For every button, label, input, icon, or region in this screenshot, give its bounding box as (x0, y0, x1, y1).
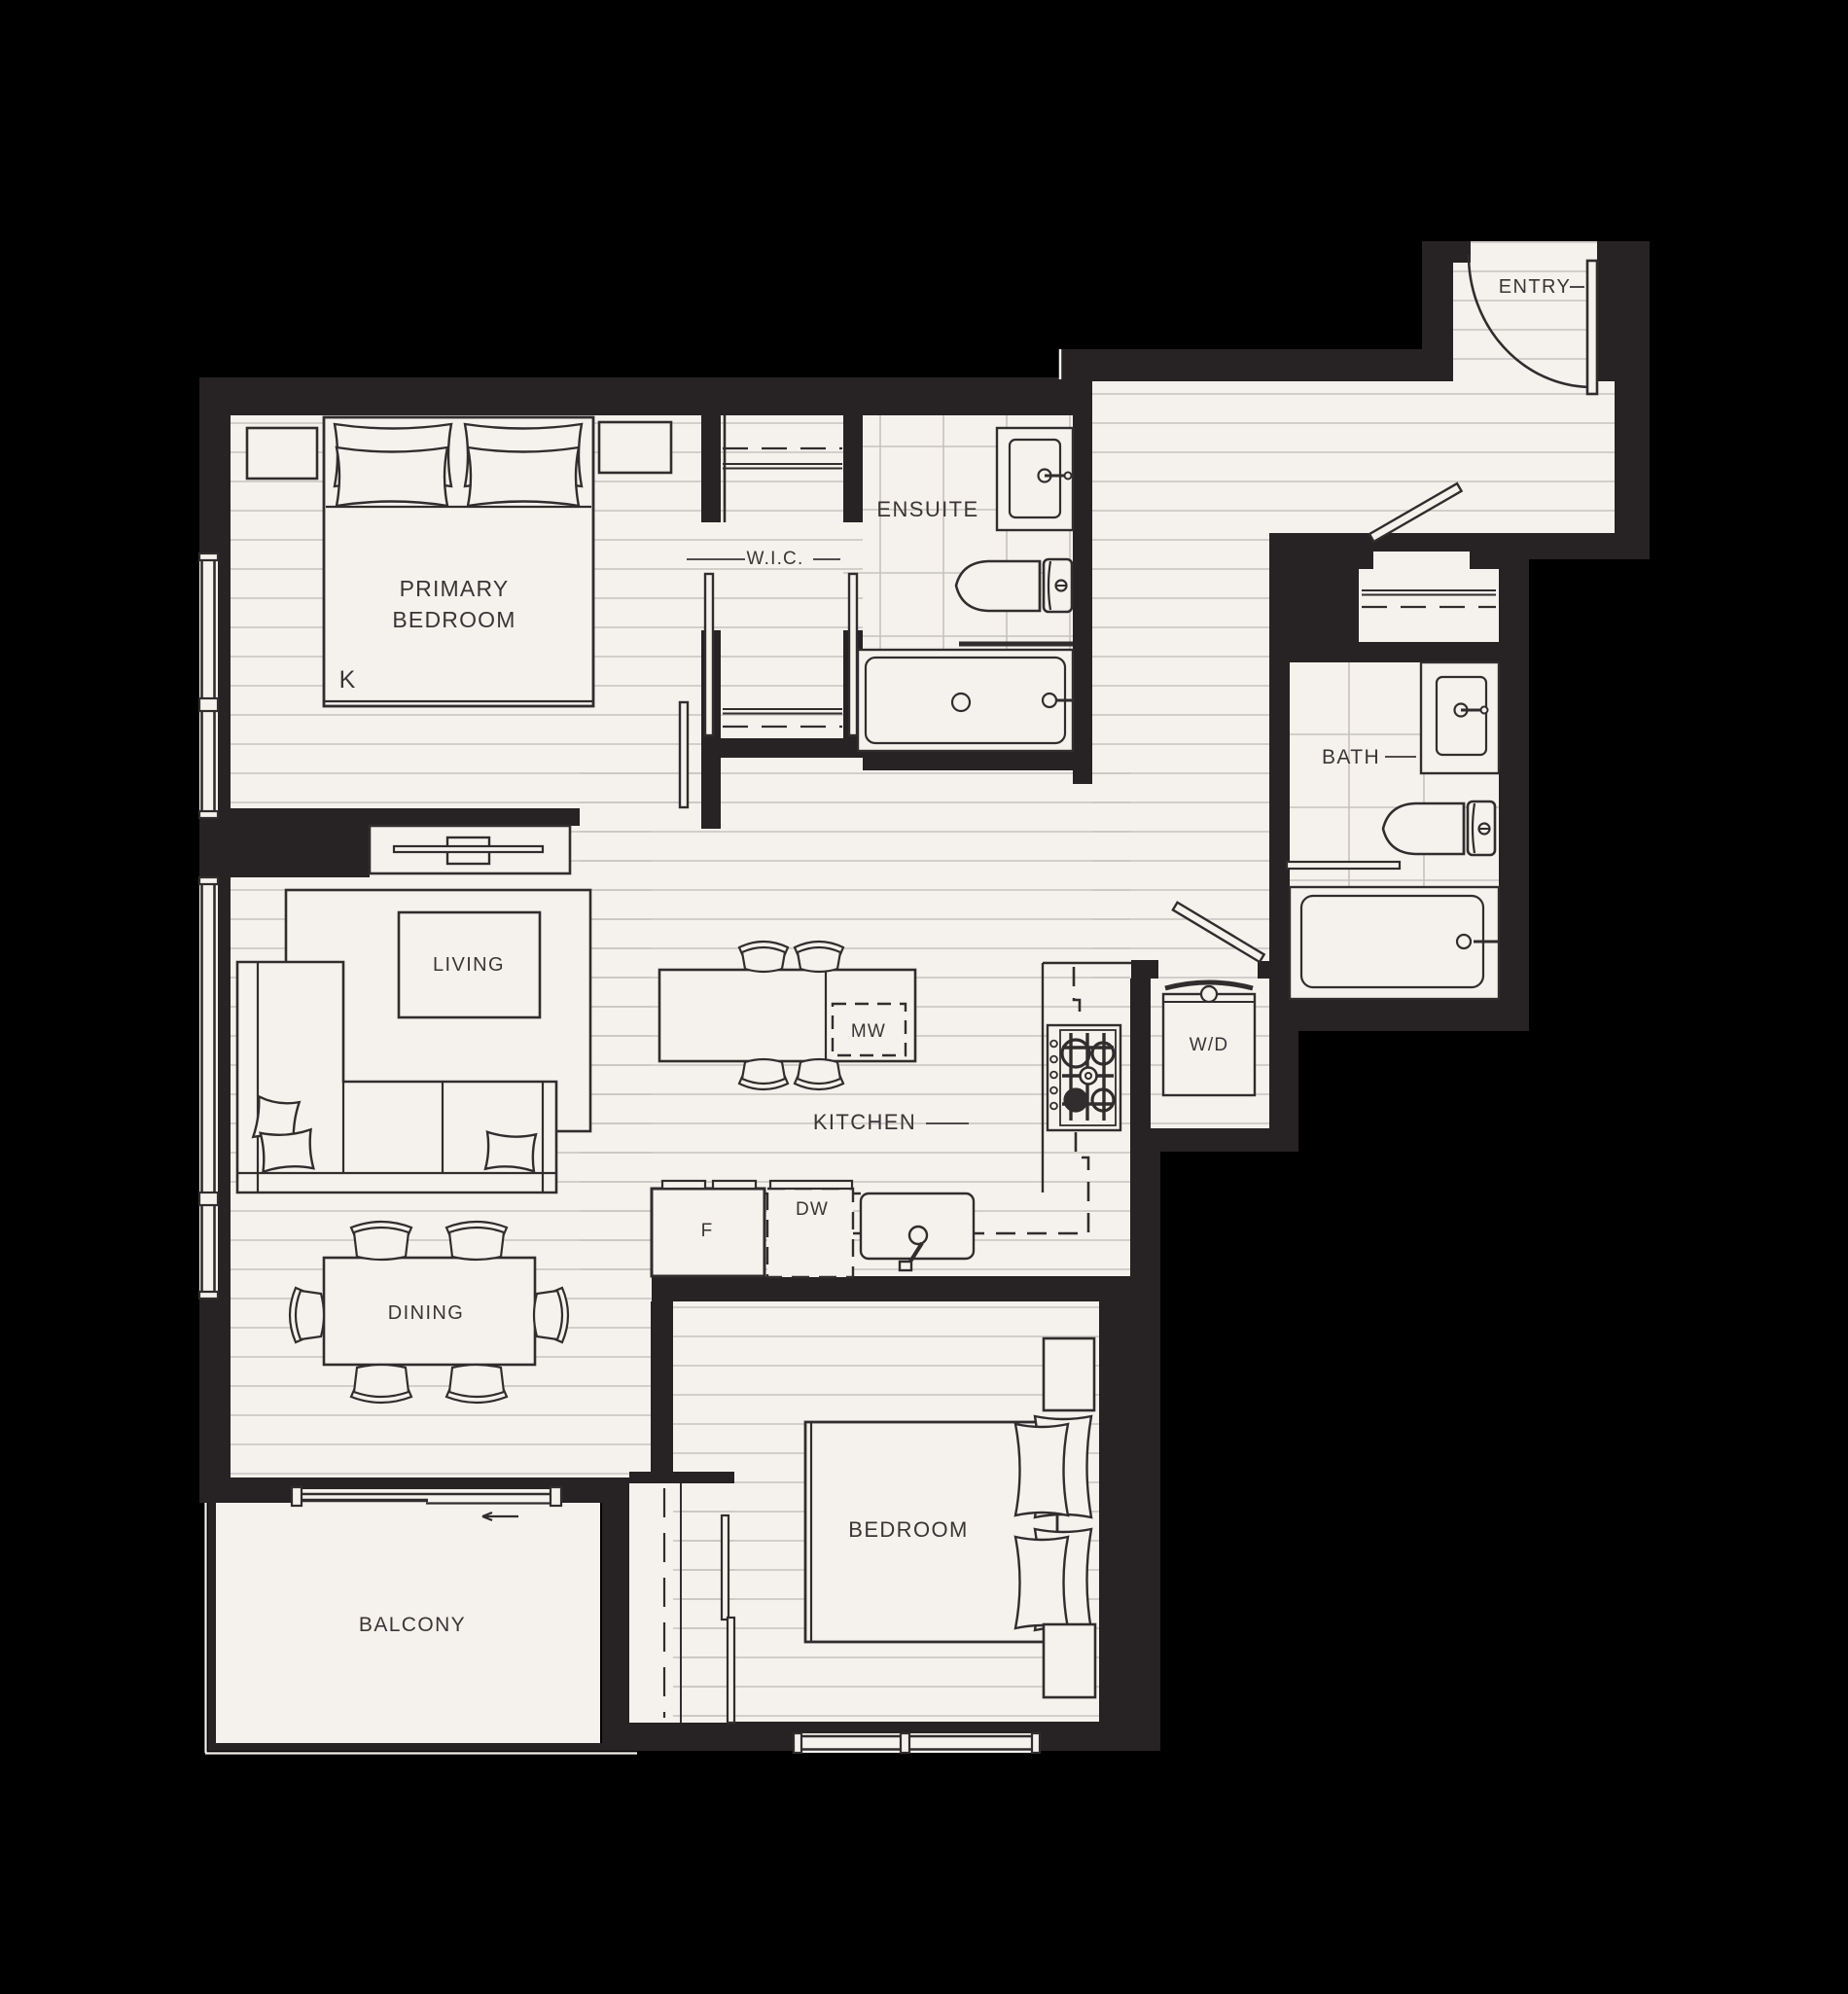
svg-text:ENTRY: ENTRY (1499, 276, 1571, 298)
svg-text:DINING: DINING (388, 1302, 464, 1324)
svg-text:PRIMARY: PRIMARY (400, 576, 510, 601)
svg-text:BEDROOM: BEDROOM (848, 1517, 968, 1542)
svg-text:MW: MW (851, 1021, 886, 1042)
svg-text:KITCHEN: KITCHEN (813, 1110, 916, 1134)
svg-text:BATH: BATH (1322, 746, 1380, 768)
svg-text:BALCONY: BALCONY (359, 1614, 466, 1636)
svg-text:BEDROOM: BEDROOM (392, 607, 515, 632)
svg-text:F: F (701, 1221, 714, 1241)
svg-text:LIVING: LIVING (433, 954, 505, 976)
svg-text:K: K (339, 666, 356, 694)
svg-text:W/D: W/D (1190, 1035, 1229, 1055)
svg-text:DW: DW (796, 1199, 829, 1220)
svg-text:W.I.C.: W.I.C. (747, 549, 804, 569)
svg-text:ENSUITE: ENSUITE (876, 497, 978, 521)
